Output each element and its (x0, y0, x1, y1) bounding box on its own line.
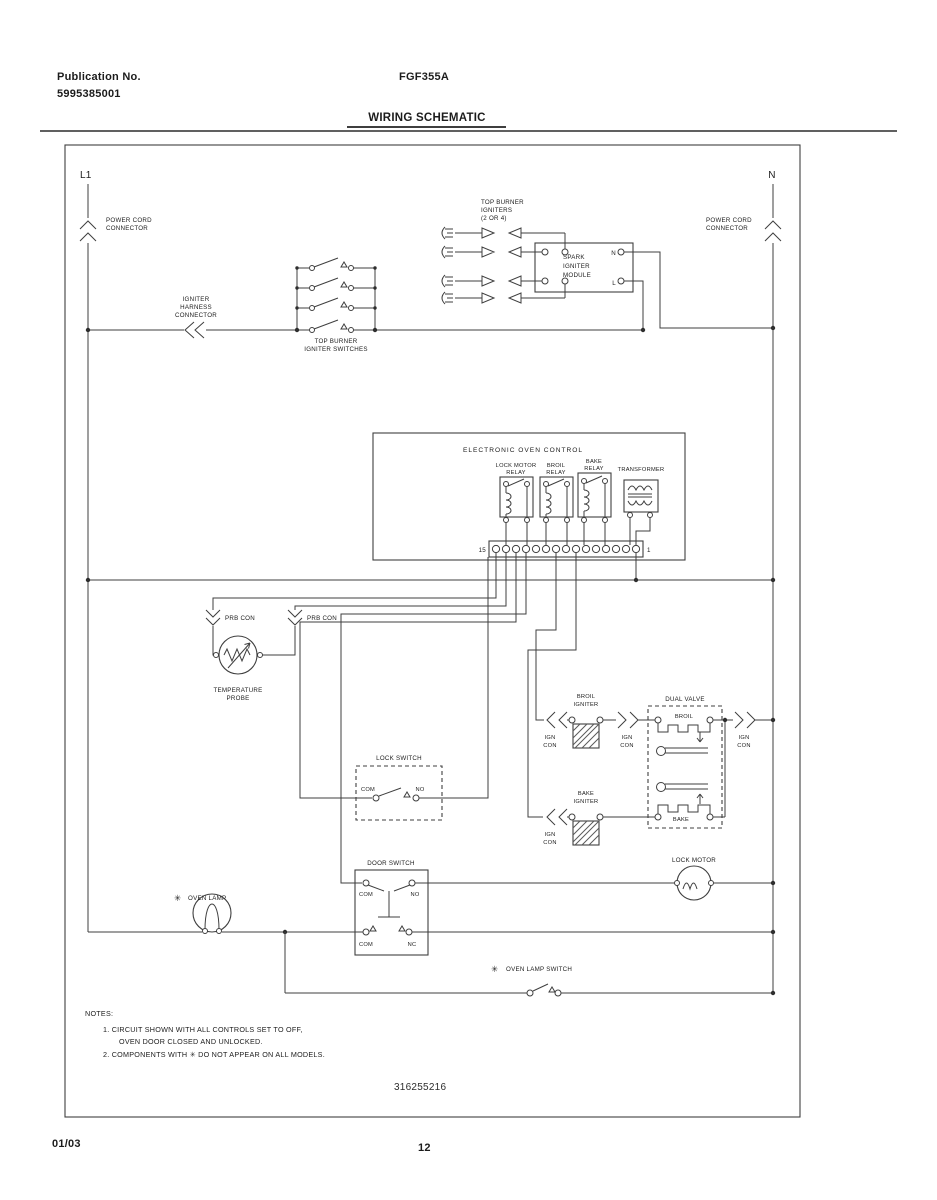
ign-connector-icon (547, 712, 567, 728)
control-wire-bundle (213, 553, 576, 883)
variable-arrow-icon (228, 643, 250, 668)
wiring-schematic-svg: Publication No. 5995385001 FGF355A WIRIN… (0, 0, 937, 1200)
door-switch: DOOR SWITCH COM NO COM NC (355, 860, 428, 955)
probe-label-1: TEMPERATURE (213, 687, 262, 694)
con-label: CON (543, 840, 556, 846)
nc-label: NC (408, 942, 417, 948)
strip-number-15: 15 (479, 547, 487, 554)
ign-label: IGN (545, 832, 556, 838)
notes-block: NOTES: 1. CIRCUIT SHOWN WITH ALL CONTROL… (85, 1009, 325, 1059)
power-cord-label-2: CONNECTOR (706, 225, 748, 232)
harness-label-1: IGNITER (183, 296, 210, 303)
footer-date: 01/03 (52, 1138, 81, 1150)
temperature-probe: PRB CON PRB CON TEMPERATURE PROBE (206, 610, 337, 702)
igniters-label-2: IGNITERS (481, 207, 512, 214)
relay-label-1: BROIL (547, 463, 565, 469)
relay-label-2: RELAY (506, 470, 525, 476)
publication-number: 5995385001 (57, 88, 121, 100)
electronic-oven-control: ELECTRONIC OVEN CONTROL LOCK MOTOR RELAY… (373, 433, 685, 560)
broil-valve-coil (658, 723, 710, 732)
prb-connector-icon (206, 610, 220, 625)
broil-igniter: IGN CON BROIL IGNITER IGN CON (543, 694, 655, 749)
door-switch-label: DOOR SWITCH (367, 860, 414, 867)
relay-label-1: LOCK MOTOR (496, 463, 537, 469)
bake-igniter-label-2: IGNITER (574, 799, 599, 805)
com-label: COM (359, 942, 373, 948)
ign-connector-icon (547, 809, 567, 825)
lock-motor-label: LOCK MOTOR (672, 857, 716, 864)
note-2: 2. COMPONENTS WITH ✳ DO NOT APPEAR ON AL… (103, 1050, 325, 1059)
harness-label-3: CONNECTOR (175, 312, 217, 319)
connector-chevrons-icon (185, 322, 204, 338)
relay-label-1: BAKE (586, 459, 602, 465)
com-label: COM (361, 787, 375, 793)
power-cord-label-1: POWER CORD (706, 217, 752, 224)
note-1b: OVEN DOOR CLOSED AND UNLOCKED. (119, 1037, 263, 1046)
oven-lamp-switch-label: OVEN LAMP SWITCH (506, 966, 572, 973)
prb-con-label: PRB CON (225, 615, 255, 622)
ign-label: IGN (739, 735, 750, 741)
dual-valve: DUAL VALVE BROIL BAKE IGN CON (648, 696, 775, 828)
diagram-border (65, 145, 800, 1117)
asterisk-icon: ✳ (174, 893, 181, 903)
diagram-part-number: 316255216 (394, 1082, 446, 1093)
broil-label: BROIL (675, 714, 693, 720)
lock-switch: LOCK SWITCH COM NO (356, 755, 442, 820)
relay-label-2: RELAY (584, 466, 603, 472)
spark-igniter-module: SPARK IGNITER MODULE N L (535, 243, 775, 332)
broil-igniter-label-1: BROIL (577, 694, 595, 700)
module-n-wire (624, 252, 771, 328)
l1-power-cord-connector: L1 POWER CORD CONNECTOR (80, 170, 152, 932)
footer-page-number: 12 (418, 1142, 431, 1154)
wire-door-switch (341, 553, 526, 883)
wire-bake-igniter (528, 553, 576, 817)
wire-prb-left (213, 553, 496, 610)
page-footer: 01/03 12 (52, 1138, 431, 1154)
l1-label: L1 (80, 170, 92, 181)
con-label: CON (737, 743, 750, 749)
lamp-filament-icon (205, 904, 219, 930)
connector-chevrons-icon (765, 221, 781, 241)
con-label: CON (543, 743, 556, 749)
con-label: CON (620, 743, 633, 749)
bake-igniter-label-1: BAKE (578, 791, 594, 797)
terminal-n-label: N (611, 250, 616, 257)
wire-prb-right (295, 553, 506, 610)
no-label: NO (415, 787, 424, 793)
power-cord-label-2: CONNECTOR (106, 225, 148, 232)
oven-lamp: ✳ OVEN LAMP (88, 893, 775, 934)
spark-electrode-icon (442, 227, 453, 304)
page-header: Publication No. 5995385001 FGF355A WIRIN… (40, 71, 897, 131)
note-1a: 1. CIRCUIT SHOWN WITH ALL CONTROLS SET T… (103, 1025, 303, 1034)
lock-switch-label: LOCK SWITCH (376, 755, 422, 762)
broil-relay: BROIL RELAY (540, 463, 573, 545)
transformer-label: TRANSFORMER (618, 467, 665, 473)
module-label-1: SPARK (563, 254, 585, 261)
publication-label: Publication No. (57, 71, 141, 83)
schematic-page: Publication No. 5995385001 FGF355A WIRIN… (0, 0, 937, 1200)
n-power-cord-connector: N POWER CORD CONNECTOR (706, 170, 781, 993)
top-burner-igniter-switches: TOP BURNER IGNITER SWITCHES (295, 258, 377, 353)
probe-label-2: PROBE (227, 695, 250, 702)
ign-label: IGN (622, 735, 633, 741)
module-label-3: MODULE (563, 272, 591, 279)
bake-igniter: IGN CON BAKE IGNITER (543, 791, 655, 846)
harness-label-2: HARNESS (180, 304, 212, 311)
terminal-l-label: L (612, 280, 616, 287)
switches-label-1: TOP BURNER (315, 338, 358, 345)
module-label-2: IGNITER (563, 263, 590, 270)
motor-winding-icon (683, 883, 697, 889)
igniters-label-1: TOP BURNER (481, 199, 524, 206)
power-cord-label-1: POWER CORD (106, 217, 152, 224)
resistor-zigzag-icon (224, 649, 250, 661)
ign-connector-icon (618, 712, 638, 728)
eoc-title: ELECTRONIC OVEN CONTROL (463, 447, 583, 454)
lock-motor: LOCK MOTOR (415, 857, 775, 900)
wire-broil-igniter (536, 553, 556, 720)
valve-plunger-icon (665, 784, 708, 789)
prb-con-label: PRB CON (307, 615, 337, 622)
wire-lock-switch-return (419, 557, 488, 798)
ign-label: IGN (545, 735, 556, 741)
relay-label-2: RELAY (546, 470, 565, 476)
probe-circle (219, 636, 257, 674)
no-label: NO (410, 892, 419, 898)
bake-valve-coil (658, 805, 710, 814)
com-label: COM (359, 892, 373, 898)
transformer: TRANSFORMER (618, 467, 665, 545)
switch-row (297, 258, 375, 333)
ign-connector-icon (735, 712, 755, 728)
oven-lamp-label: OVEN LAMP (188, 895, 226, 902)
terminal-strip: 15 1 (479, 541, 651, 557)
igniter-hatch-icon (573, 724, 599, 748)
n-label: N (768, 170, 775, 181)
bus-cross-line (86, 328, 775, 582)
model-number: FGF355A (399, 71, 449, 83)
switches-label-2: IGNITER SWITCHES (304, 346, 367, 353)
page-title: WIRING SCHEMATIC (368, 112, 486, 124)
bake-relay: BAKE RELAY (578, 459, 611, 545)
asterisk-icon: ✳ (491, 964, 498, 974)
connector-chevrons-icon (80, 221, 96, 241)
broil-igniter-label-2: IGNITER (574, 702, 599, 708)
bake-label: BAKE (673, 817, 689, 823)
notes-heading: NOTES: (85, 1009, 113, 1018)
lock-motor-relay: LOCK MOTOR RELAY (496, 463, 537, 545)
igniter-harness-connector: IGNITER HARNESS CONNECTOR (88, 296, 643, 338)
strip-number-1: 1 (647, 547, 651, 554)
valve-plunger-icon (665, 748, 708, 753)
dual-valve-label: DUAL VALVE (665, 696, 705, 703)
igniter-hatch-icon (573, 821, 599, 845)
igniters-label-3: (2 OR 4) (481, 215, 507, 222)
